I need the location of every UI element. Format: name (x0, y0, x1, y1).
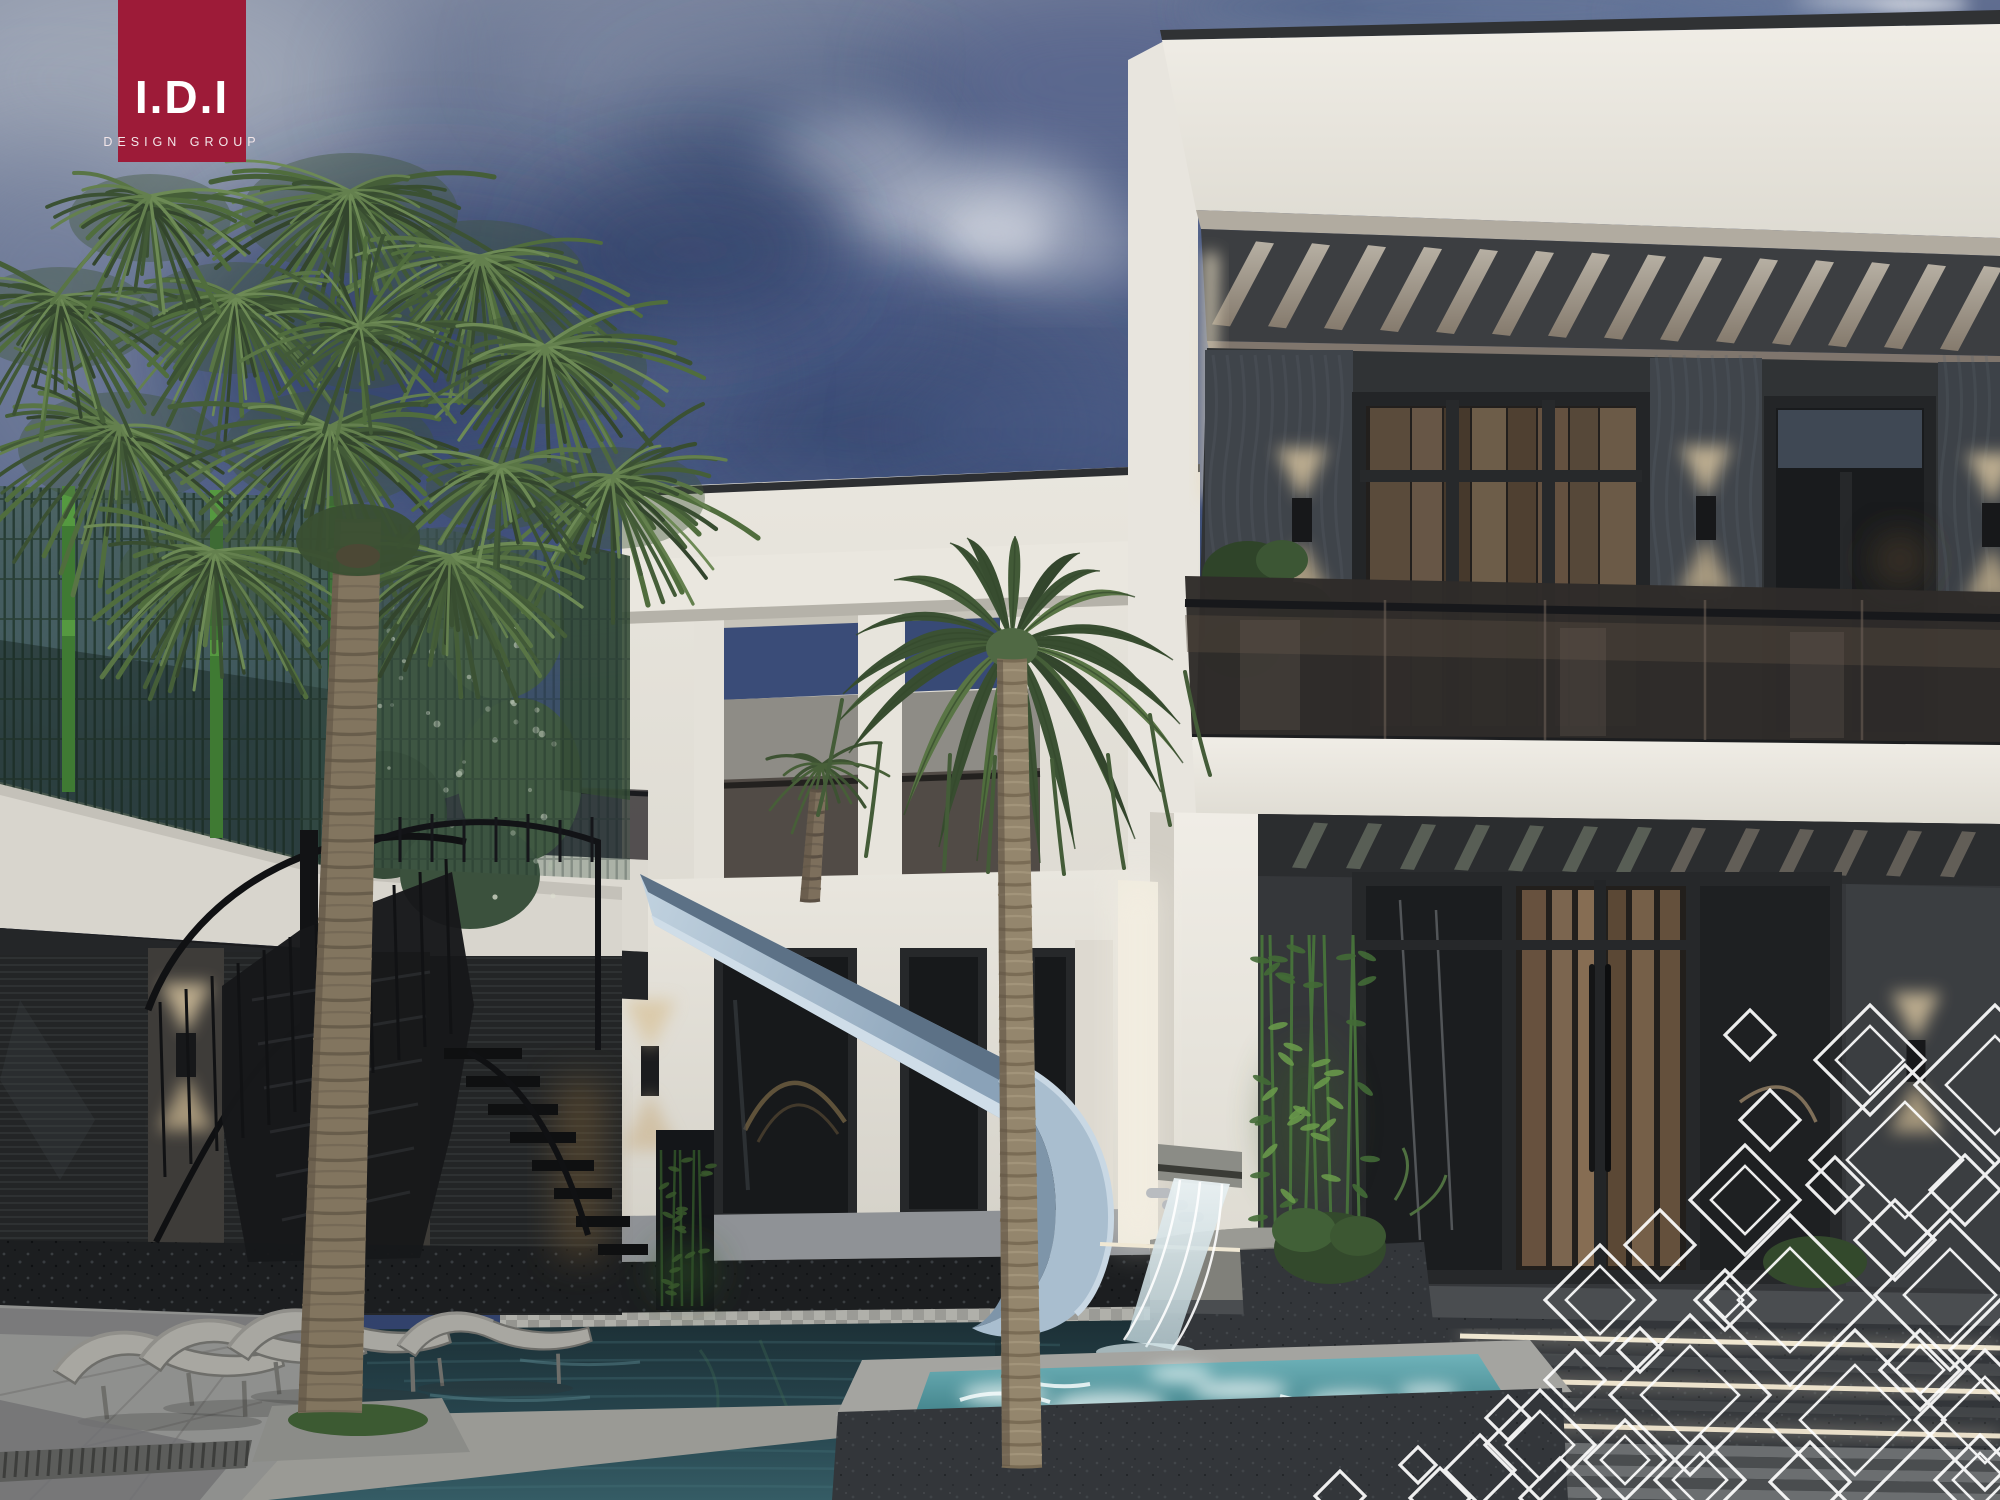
svg-text:I.D.I: I.D.I (135, 71, 229, 123)
svg-text:DESIGN GROUP: DESIGN GROUP (103, 135, 260, 149)
